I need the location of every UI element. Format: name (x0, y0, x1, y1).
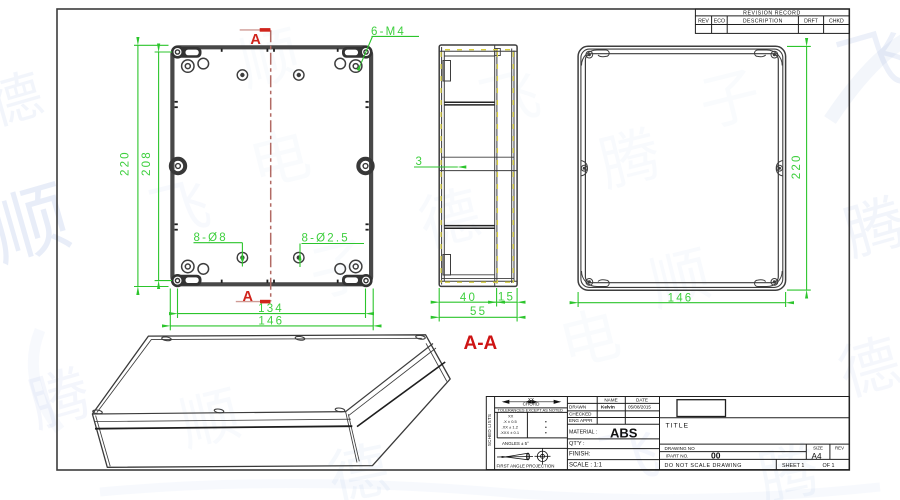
svg-text:.XXX ± 0.1: .XXX ± 0.1 (500, 430, 520, 435)
svg-text:REVISION RECORD: REVISION RECORD (743, 10, 801, 16)
svg-text:00: 00 (711, 451, 721, 461)
svg-text:REV: REV (698, 18, 709, 24)
svg-text:NAME: NAME (604, 398, 617, 403)
svg-text:ANGLES ± 5°: ANGLES ± 5° (502, 441, 529, 446)
svg-text:A: A (250, 32, 261, 48)
svg-text:/PART NO.: /PART NO. (666, 454, 688, 459)
svg-text:134: 134 (258, 303, 284, 315)
svg-text:3: 3 (416, 156, 425, 168)
svg-text:TITLE: TITLE (666, 423, 690, 430)
svg-text:SCALE : 1:1: SCALE : 1:1 (569, 463, 603, 469)
svg-text:CHECKED: CHECKED (569, 411, 592, 416)
svg-text:FIRST ANGLE PROJECTION: FIRST ANGLE PROJECTION (497, 464, 555, 469)
svg-text:ENG APPR: ENG APPR (569, 418, 593, 423)
svg-text:A-A: A-A (464, 333, 498, 354)
svg-text:DRAWN: DRAWN (569, 405, 586, 410)
svg-text:MATERIAL :: MATERIAL : (569, 430, 597, 436)
svg-text:OF 1: OF 1 (823, 463, 835, 469)
svg-text:208: 208 (141, 150, 153, 176)
svg-text:.XX ± 1.2: .XX ± 1.2 (502, 425, 519, 430)
svg-text:DESCRIPTION: DESCRIPTION (743, 18, 783, 24)
svg-text:FINISH:: FINISH: (569, 452, 591, 458)
svg-text:146: 146 (668, 292, 694, 304)
svg-text:DO NOT SCALE DRAWING: DO NOT SCALE DRAWING (665, 463, 742, 469)
svg-text:DATE: DATE (636, 398, 648, 403)
svg-text:•: • (545, 431, 547, 437)
svg-text:146: 146 (258, 316, 284, 328)
svg-text:A: A (242, 289, 253, 305)
svg-text:.X ± 0.5: .X ± 0.5 (503, 419, 518, 424)
svg-text:QT'Y :: QT'Y : (569, 441, 585, 447)
svg-text:CHKD: CHKD (829, 18, 844, 24)
svg-text:TOLERANCES EXCEPT AS NOTED: TOLERANCES EXCEPT AS NOTED (498, 407, 564, 412)
svg-text:SHEET 1: SHEET 1 (782, 463, 804, 469)
svg-text:40: 40 (460, 292, 477, 304)
svg-text:220: 220 (120, 150, 132, 176)
svg-text:DRAWING NO: DRAWING NO (665, 446, 696, 451)
svg-text:8-Ø8: 8-Ø8 (194, 232, 228, 244)
svg-text:ABS: ABS (610, 426, 638, 441)
svg-text:ECO: ECO (714, 18, 725, 24)
svg-text:8-Ø2.5: 8-Ø2.5 (302, 233, 350, 245)
svg-text:15: 15 (498, 291, 515, 303)
svg-text:SIZE: SIZE (813, 446, 823, 451)
svg-text:A4: A4 (811, 452, 821, 461)
svg-text:55: 55 (470, 306, 487, 318)
svg-text:05/08/2015: 05/08/2015 (628, 405, 651, 410)
svg-text:220: 220 (791, 153, 803, 179)
svg-text:REV: REV (835, 446, 844, 451)
svg-text:Kelvin: Kelvin (601, 405, 615, 410)
svg-text:DRFT: DRFT (804, 18, 819, 24)
svg-text:CHORD: CHORD (523, 402, 541, 407)
svg-text:SCHED LISTS: SCHED LISTS (487, 414, 492, 446)
svg-text:XX: XX (508, 414, 514, 419)
